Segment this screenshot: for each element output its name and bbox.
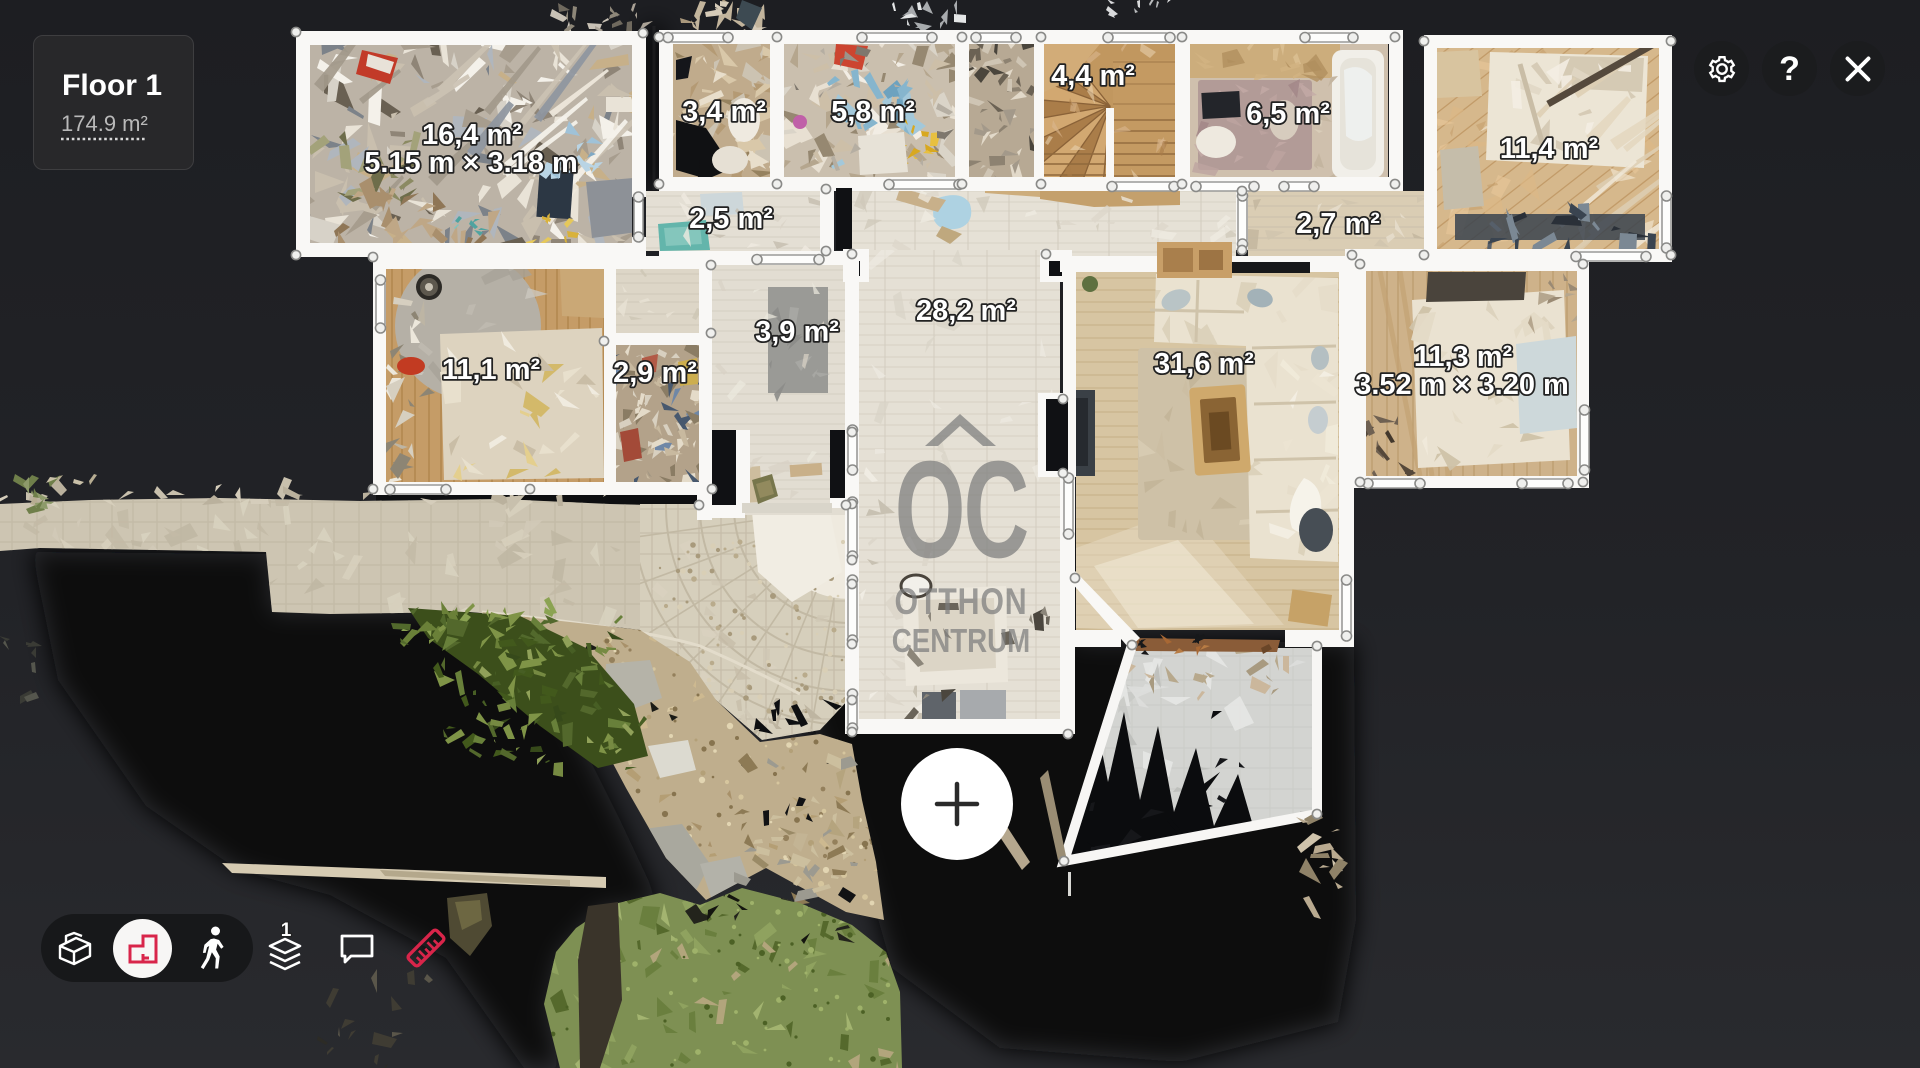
- svg-text:Floor 1: Floor 1: [62, 69, 162, 102]
- svg-text:3.52 m × 3.20 m: 3.52 m × 3.20 m: [1355, 369, 1569, 401]
- svg-text:3,9 m²: 3,9 m²: [755, 316, 839, 348]
- svg-text:28,2 m²: 28,2 m²: [916, 295, 1016, 327]
- svg-text:2,5 m²: 2,5 m²: [689, 203, 773, 235]
- svg-text:5.15 m × 3.18 m: 5.15 m × 3.18 m: [364, 147, 578, 179]
- svg-text:OC: OC: [895, 432, 1028, 587]
- svg-text:?: ?: [1779, 50, 1800, 88]
- svg-text:4,4 m²: 4,4 m²: [1051, 60, 1135, 92]
- svg-text:31,6 m²: 31,6 m²: [1154, 348, 1254, 380]
- svg-text:2,7 m²: 2,7 m²: [1296, 208, 1380, 240]
- svg-text:3,4 m²: 3,4 m²: [682, 96, 766, 128]
- svg-text:OTTHON: OTTHON: [895, 581, 1028, 623]
- svg-text:2,9 m²: 2,9 m²: [613, 357, 697, 389]
- svg-text:174.9 m²: 174.9 m²: [61, 111, 148, 136]
- svg-text:1: 1: [281, 920, 292, 941]
- svg-text:11,4 m²: 11,4 m²: [1500, 133, 1599, 165]
- svg-text:11,1 m²: 11,1 m²: [442, 354, 541, 386]
- svg-text:5,8 m²: 5,8 m²: [831, 96, 915, 128]
- svg-text:CENTRUM: CENTRUM: [892, 623, 1031, 660]
- svg-text:6,5 m²: 6,5 m²: [1246, 98, 1330, 130]
